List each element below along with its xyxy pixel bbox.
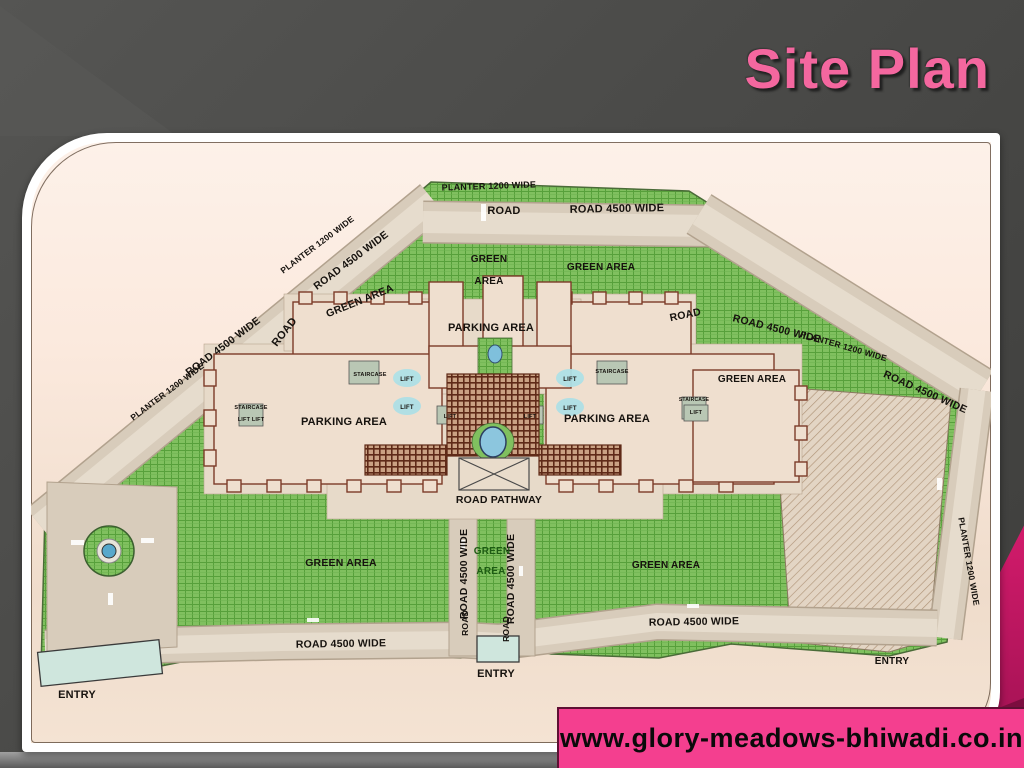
plan-label: LIFT [524,414,537,420]
plan-label: GREEN AREA [718,374,786,385]
plan-label: LIFT [690,410,703,416]
plan-label: ROAD PATHWAY [456,494,542,506]
plan-label: PARKING AREA [448,322,534,334]
plan-label: ROAD 4500 WIDE [649,615,740,629]
plan-label: GREEN AREA [305,557,377,569]
plan-label: STAIRCASE [679,397,710,403]
website-banner[interactable]: www.glory-meadows-bhiwadi.co.in [557,707,1024,768]
entry-gate-center [477,636,519,662]
pool [480,427,506,457]
plan-label: PARKING AREA [564,413,650,425]
plan-label: ROAD [487,205,520,217]
plan-label: ROAD 4500 WIDE [570,202,665,216]
plan-label: AREA [474,276,503,287]
plan-label: ROAD [460,610,470,636]
plan-label: STAIRCASE [353,372,386,378]
site-plan-panel: PLANTER 1200 WIDEROADROAD 4500 WIDEGREEN… [22,133,1000,752]
plan-label: AREA [476,566,505,577]
plan-label: ENTRY [477,668,515,680]
plan-label: LIFT [400,405,414,411]
plan-label: LIFT [563,406,577,412]
plan-label: ROAD 4500 WIDE [296,637,387,651]
plan-label: GREEN AREA [567,262,635,273]
plan-label: GREEN AREA [632,560,700,571]
plan-label: ENTRY [58,689,96,701]
roundabout [84,526,134,576]
plan-label: LIFT [563,377,577,383]
plan-label: STAIRCASE [234,405,267,411]
plan-label: GREEN [474,546,511,557]
plan-label: LIFT [400,377,414,383]
page-title: Site Plan [744,36,990,101]
website-url[interactable]: www.glory-meadows-bhiwadi.co.in [560,723,1023,754]
plan-label: ENTRY [875,656,910,667]
plan-label: LIFT [444,414,457,420]
plan-label: GREEN [471,254,508,265]
presentation-slide: Site Plan [0,0,1024,768]
plan-label: PARKING AREA [301,416,387,428]
plan-label: ROAD 4500 WIDE [458,529,470,619]
plan-label: ROAD [501,616,511,642]
site-plan-drawing: PLANTER 1200 WIDEROADROAD 4500 WIDEGREEN… [31,142,991,743]
plan-label: LIFT LIFT [238,417,265,423]
plan-label: STAIRCASE [595,369,628,375]
